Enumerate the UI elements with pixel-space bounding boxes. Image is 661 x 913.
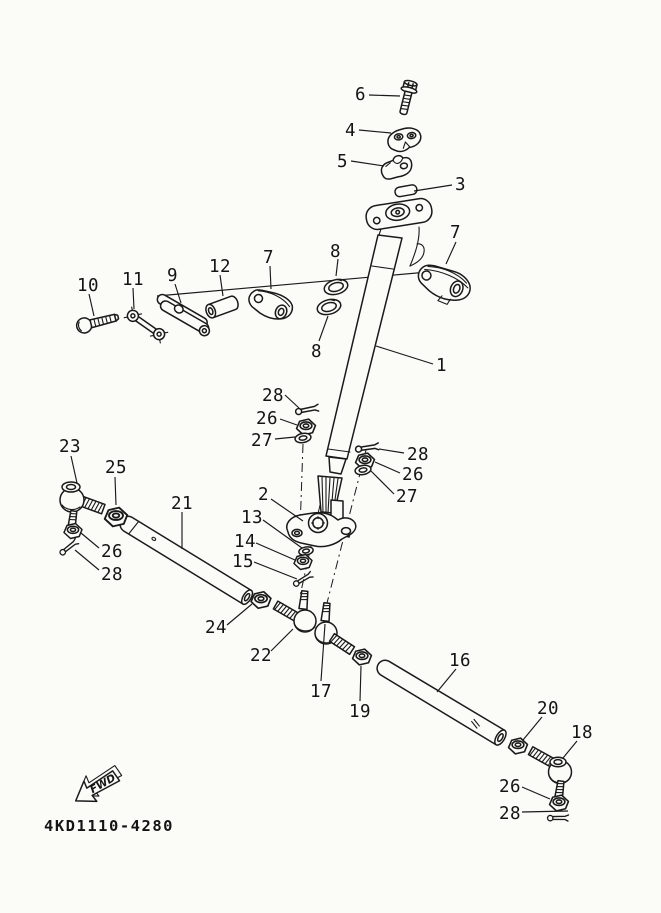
callout-bolt-6: 6 (355, 85, 366, 105)
callout-cap-3: 3 (455, 175, 466, 195)
cotter-pin-28-lower-left (58, 539, 79, 556)
callout-nut-25: 25 (105, 458, 127, 478)
nut-26-bottom (550, 795, 569, 811)
callout-nut-14: 14 (234, 532, 256, 552)
joint-link-11 (124, 307, 167, 343)
callout-washer-27-right: 27 (396, 487, 418, 507)
clamp-bolt-6 (395, 79, 419, 116)
tie-rod-16 (374, 657, 508, 747)
seal-washer-top-8 (323, 277, 350, 297)
callout-holder-left-7: 7 (263, 248, 274, 268)
callout-link-11: 11 (122, 270, 144, 290)
callout-nut-19: 19 (349, 702, 371, 722)
callout-washer-13: 13 (241, 508, 263, 528)
nut-19 (353, 649, 372, 665)
callout-seal-top-8: 8 (330, 242, 341, 262)
callout-holder-right-7: 7 (450, 223, 461, 243)
callout-nut-26-left: 26 (256, 409, 278, 429)
washer-27-right (354, 464, 371, 476)
callout-rod-16: 16 (449, 651, 471, 671)
nut-26-lower-left (64, 524, 82, 539)
callout-upper-clamp-4: 4 (345, 121, 356, 141)
part-code: 4KD1110-4280 (44, 817, 174, 835)
callout-collar-12: 12 (209, 257, 231, 277)
tie-rod-end-23 (60, 482, 105, 525)
callout-pin-28-lower-left: 28 (101, 565, 123, 585)
callout-nut-26-right: 26 (402, 465, 424, 485)
callout-rod-end-17: 17 (310, 682, 332, 702)
fwd-direction-arrow: FWD (67, 760, 126, 810)
cotter-pin-28-left (295, 404, 319, 415)
callout-rod-end-18: 18 (571, 723, 593, 743)
bearing-holder-right-7 (412, 259, 475, 310)
callout-column-1: 1 (436, 356, 447, 376)
callout-nut-26-lower-left: 26 (101, 542, 123, 562)
callout-nut-24: 24 (205, 618, 227, 638)
nut-24 (251, 592, 271, 609)
callout-rod-end-22: 22 (250, 646, 272, 666)
callout-pin-15: 15 (232, 552, 254, 572)
callout-rod-21: 21 (171, 494, 193, 514)
handlebar-clamp-upper-4 (386, 126, 422, 153)
callout-lever-9: 9 (167, 266, 178, 286)
bearing-holder-left-7 (245, 285, 296, 325)
callout-rod-end-23: 23 (59, 437, 81, 457)
handlebar-holder-lower-5 (380, 154, 414, 180)
callout-pin-28-right: 28 (407, 445, 429, 465)
callout-nut-20: 20 (537, 699, 559, 719)
callout-bolt-10: 10 (77, 276, 99, 296)
callout-nut-26-bottom: 26 (499, 777, 521, 797)
seal-washer-bottom-8 (316, 297, 343, 317)
callout-washer-27-left: 27 (251, 431, 273, 451)
callout-lower-holder-5: 5 (337, 152, 348, 172)
washer-27-left (294, 432, 311, 444)
leader-lines (71, 95, 577, 812)
callout-pin-28-left: 28 (262, 386, 284, 406)
tie-rod-end-18 (528, 747, 571, 798)
collar-12 (204, 295, 240, 319)
callout-pin-28-bottom: 28 (499, 804, 521, 824)
callout-pitman-arm-2: 2 (258, 485, 269, 505)
callout-seal-bottom-8: 8 (311, 342, 322, 362)
cotter-pin-28-bottom (547, 814, 568, 822)
fwd-arrow-label: FWD (88, 772, 118, 796)
nut-26-left (297, 419, 316, 435)
parts-diagram-canvas: 6 4 5 3 7 7 8 8 9 10 11 12 1 28 26 27 28… (0, 0, 661, 913)
tie-rod-end-17 (315, 603, 355, 655)
nut-14 (294, 555, 312, 570)
tie-rod-end-22 (273, 591, 316, 632)
stopper-bolt-10 (75, 310, 120, 335)
cotter-pin-28-right (355, 443, 379, 452)
nut-25 (105, 508, 128, 527)
nut-20 (509, 738, 528, 754)
diagram-page: 6 4 5 3 7 7 8 8 9 10 11 12 1 28 26 27 28… (0, 0, 661, 913)
